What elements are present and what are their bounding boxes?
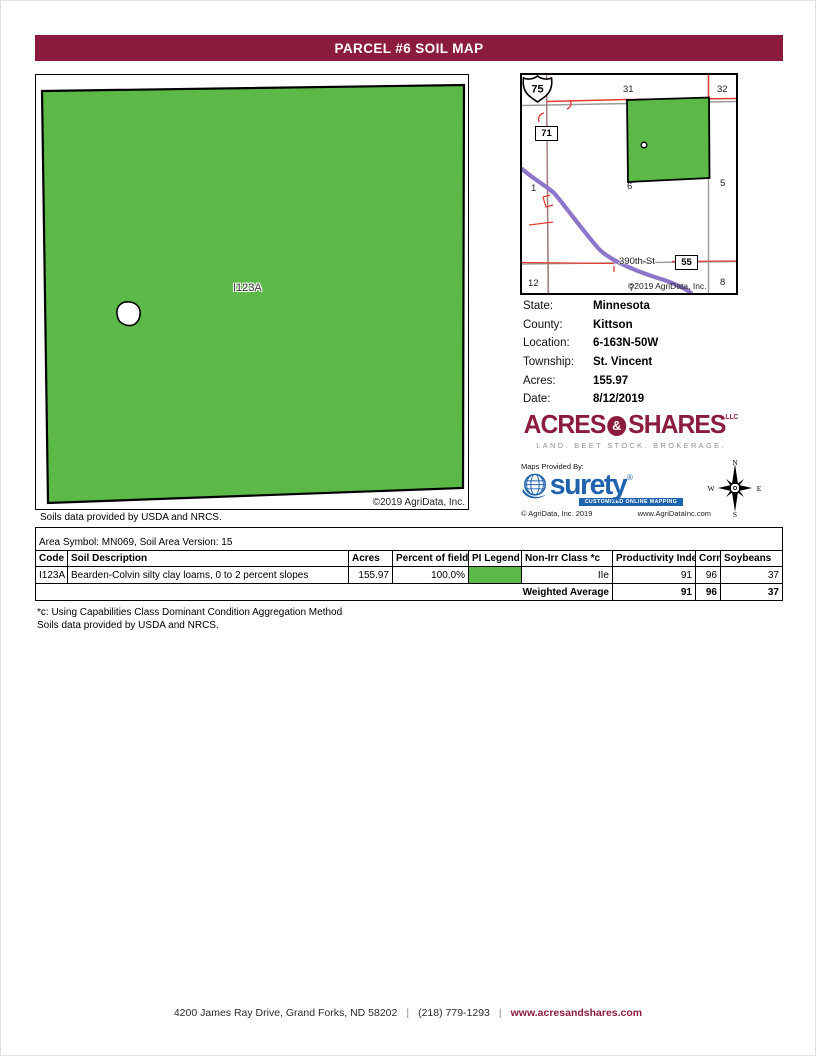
state-value: Minnesota [593,300,650,312]
date-label: Date: [523,393,593,405]
header-productivity-index: Productivity Index [613,551,696,567]
weighted-corn: 96 [696,584,721,600]
soils-source-note: Soils data provided by USDA and NRCS. [40,512,222,523]
us-route-75-shield: 75 [522,75,553,103]
parcel-soil-map: I123A ©2019 AgriData, Inc. [35,74,469,510]
agridata-website-link[interactable]: www.AgriDataInc.com [638,509,711,518]
weighted-average-label: Weighted Average [36,584,613,600]
surety-wordmark: surety [550,472,626,498]
page-header-bar: PARCEL #6 SOIL MAP [35,35,783,61]
compass-rose-icon: N W E S [707,459,763,519]
footnote-aggregation-method: *c: Using Capabilities Class Dominant Co… [37,606,342,619]
soil-map-report-page: PARCEL #6 SOIL MAP I123A ©2019 AgriData,… [0,0,816,1056]
section-number-1: 1 [531,183,536,194]
footer-separator: | [406,1007,409,1019]
route-71-marker: 71 [535,126,558,141]
info-row-location: Location: 6-163N-50W [523,334,748,353]
info-row-county: County: Kittson [523,316,748,335]
cell-soybeans: 37 [721,567,782,584]
non-soil-inclusion-blob [117,302,140,326]
page-footer: 4200 James Ray Drive, Grand Forks, ND 58… [0,1007,816,1019]
registered-mark: ® [627,473,633,482]
acres-and-shares-logo: ACRES&SHARESLLC LAND. BEET STOCK. BROKER… [518,409,744,450]
section-number-31: 31 [623,84,634,95]
state-label: State: [523,300,593,312]
acres-value: 155.97 [593,375,628,387]
info-row-state: State: Minnesota [523,297,748,316]
township-label: Township: [523,356,593,368]
info-row-acres: Acres: 155.97 [523,371,748,390]
svg-text:S: S [733,510,737,519]
county-value: Kittson [593,319,633,331]
section-number-8: 8 [720,277,725,288]
township-value: St. Vincent [593,356,652,368]
info-row-township: Township: St. Vincent [523,353,748,372]
locator-parcel-polygon [627,98,710,183]
red-segment-left [529,222,553,225]
header-soil-description: Soil Description [68,551,349,567]
ampersand-circle-icon: & [607,416,626,436]
locator-map-copyright: ©2019 AgriData, Inc. [628,281,707,291]
header-non-irr-class: Non-Irr Class *c [522,551,613,567]
header-acres: Acres [349,551,393,567]
date-value: 8/12/2019 [593,393,644,405]
soil-data-table: Area Symbol: MN069, Soil Area Version: 1… [35,527,783,601]
cell-acres: 155.97 [349,567,393,584]
footnote-soils-source: Soils data provided by USDA and NRCS. [37,619,342,632]
street-390th-label: 390th-St [619,256,655,267]
brand-llc-suffix: LLC [725,414,738,421]
brand-tagline: LAND. BEET STOCK. BROKERAGE. [518,441,744,450]
page-title: PARCEL #6 SOIL MAP [335,41,484,56]
parcel-info-block: State: Minnesota County: Kittson Locatio… [523,297,748,409]
section-number-32: 32 [717,84,728,95]
footer-address: 4200 James Ray Drive, Grand Forks, ND 58… [174,1007,398,1019]
surety-attribution-block: Maps Provided By: surety® CUSTOMIZED ONL… [521,462,711,518]
header-pi-legend: PI Legend [469,551,522,567]
header-code: Code [36,551,68,567]
brand-wordmark: ACRES&SHARESLLC [524,409,739,440]
cell-code: I123A [36,567,68,584]
footer-separator: | [499,1007,502,1019]
soil-code-label: I123A [233,282,262,294]
location-label: Location: [523,337,593,349]
cell-corn: 96 [696,567,721,584]
footer-phone: (218) 779-1293 [418,1007,490,1019]
cell-percent: 100.0% [393,567,469,584]
route-55-marker: 55 [675,255,698,270]
table-header-row: Code Soil Description Acres Percent of f… [36,551,782,567]
acres-label: Acres: [523,375,593,387]
surety-copyright-row: © AgriData, Inc. 2019 www.AgriDataInc.co… [521,509,711,518]
cell-productivity-index: 91 [613,567,696,584]
area-symbol-line: Area Symbol: MN069, Soil Area Version: 1… [36,528,782,551]
agridata-copyright: © AgriData, Inc. 2019 [521,509,592,518]
svg-text:N: N [732,459,738,467]
svg-text:75: 75 [531,84,543,96]
section-number-6: 6 [627,181,632,192]
cell-non-irr-class: IIe [522,567,613,584]
surety-logo-row: surety® CUSTOMIZED ONLINE MAPPING [521,472,711,506]
table-row: I123A Bearden-Colvin silty clay loams, 0… [36,567,782,584]
weighted-average-row: Weighted Average 91 96 37 [36,584,782,600]
header-corn: Corn [696,551,721,567]
table-footnotes: *c: Using Capabilities Class Dominant Co… [37,606,342,632]
section-number-12: 12 [528,278,539,289]
red-hook-left [539,113,544,122]
section-number-5: 5 [720,178,725,189]
location-value: 6-163N-50W [593,337,658,349]
header-percent-of-field: Percent of field [393,551,469,567]
soil-area-polygon [42,85,464,503]
locator-parcel-dot [641,142,647,148]
cell-soil-description: Bearden-Colvin silty clay loams, 0 to 2 … [68,567,349,584]
footer-website-link[interactable]: www.acresandshares.com [511,1007,643,1019]
header-soybeans: Soybeans [721,551,782,567]
township-locator-map: 36 31 32 1 6 5 12 7 8 71 55 75 390th-St … [520,73,738,295]
svg-text:E: E [757,484,762,493]
info-row-date: Date: 8/12/2019 [523,390,748,409]
map-copyright: ©2019 AgriData, Inc. [373,497,465,508]
county-label: County: [523,319,593,331]
surety-globe-icon [521,472,549,500]
cell-pi-legend-swatch [469,567,522,584]
svg-text:W: W [707,484,715,493]
weighted-soybeans: 37 [721,584,782,600]
weighted-productivity-index: 91 [613,584,696,600]
